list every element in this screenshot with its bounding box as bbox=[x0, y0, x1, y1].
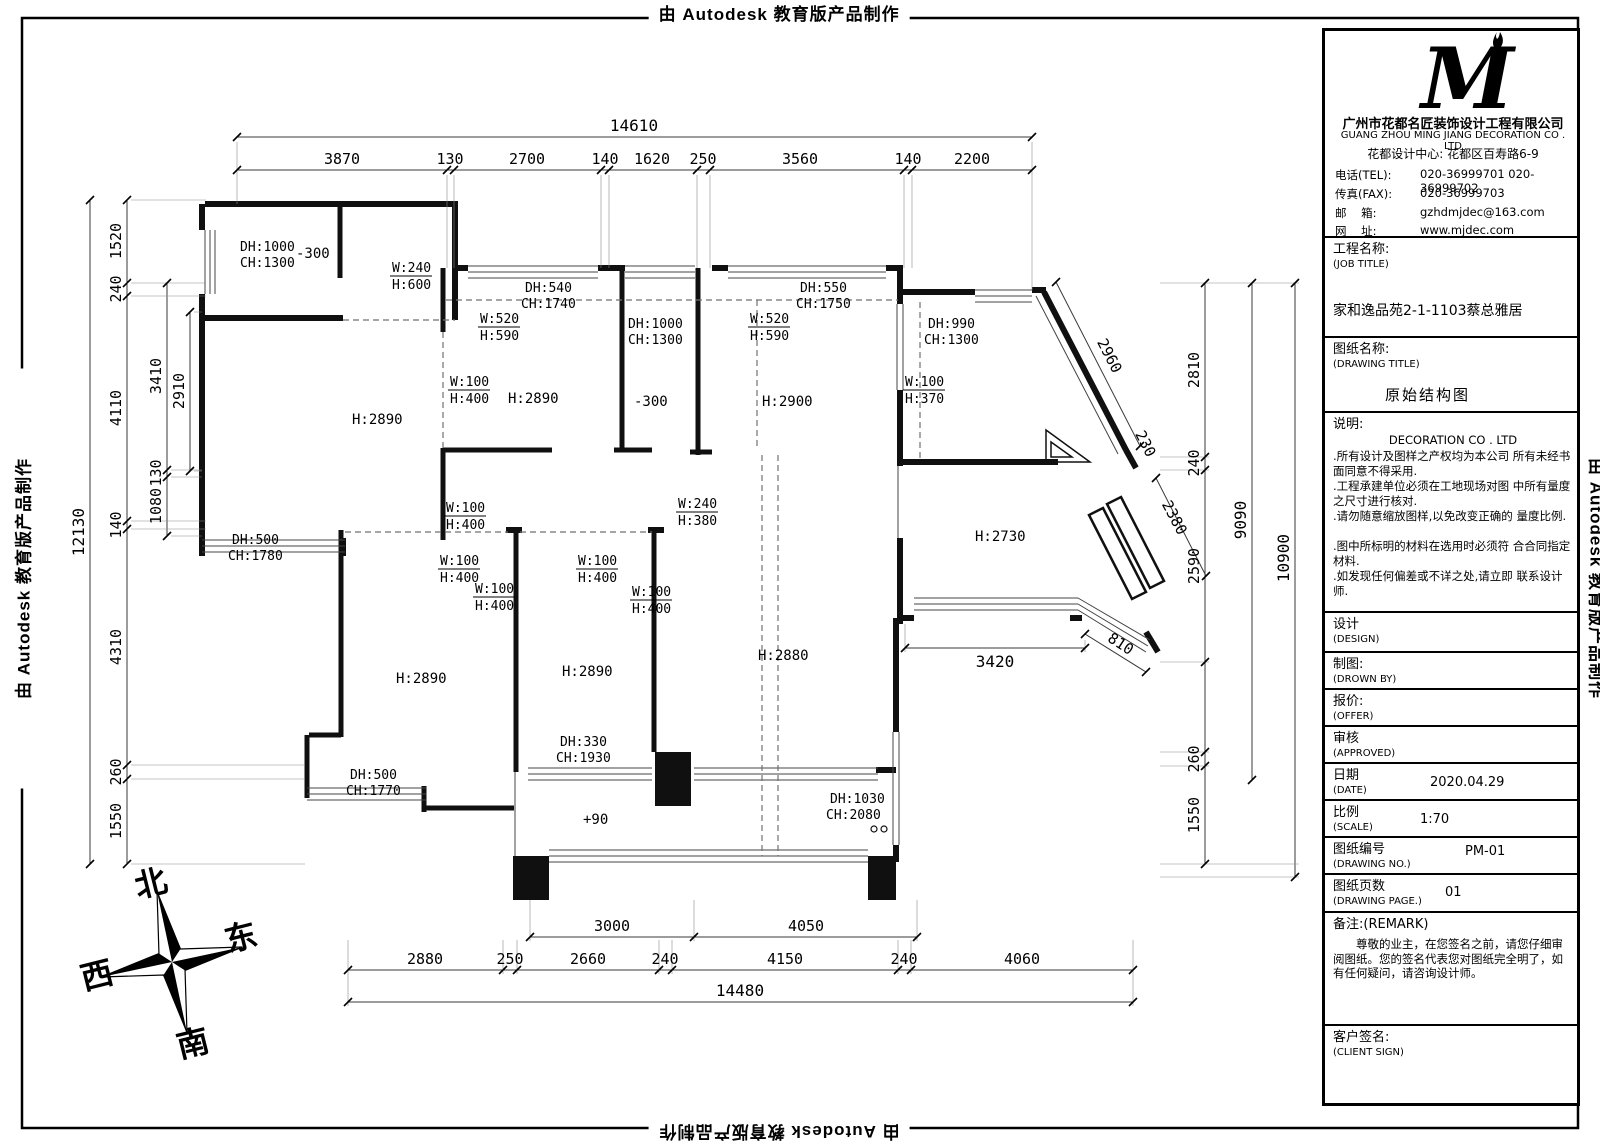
compass-north-label: 北 bbox=[131, 861, 171, 906]
drown-label-cn: 制图: bbox=[1333, 657, 1396, 672]
opening-h: H:590 bbox=[480, 329, 519, 344]
opening-w: W:100 bbox=[632, 585, 671, 600]
autodesk-banner-top: 由 Autodesk 教育版产品制作 bbox=[649, 0, 910, 25]
note-item: .如发现任何偏差或不详之处,请立即 联系设计师. bbox=[1333, 569, 1573, 598]
drawing-label-cn: 图纸名称: bbox=[1333, 342, 1420, 357]
sign-label-cn: 客户签名: bbox=[1333, 1030, 1404, 1045]
fax-value: 020-36999703 bbox=[1420, 186, 1505, 200]
opening-tag: W:100 H:400 bbox=[473, 582, 515, 614]
bay-window-panels bbox=[1089, 497, 1164, 599]
room-height-label: H:2730 bbox=[975, 529, 1026, 545]
opening-h: H:400 bbox=[440, 571, 479, 586]
opening-tag: W:100 H:400 bbox=[448, 375, 490, 407]
remark-section: 备注:(REMARK) 尊敬的业主，在您签名之前，请您仔细审阅图纸。您的签名代表… bbox=[1325, 911, 1577, 1024]
dim-right-total: 10900 bbox=[1274, 534, 1293, 582]
dim-left-seg: 1520 bbox=[107, 223, 125, 259]
opening-h: H:600 bbox=[392, 278, 431, 293]
dim-top-seg: 130 bbox=[436, 150, 463, 168]
dashed-lines bbox=[343, 300, 920, 856]
offer-row: 报价:(OFFER) bbox=[1325, 688, 1577, 725]
compass-south-label: 南 bbox=[173, 1021, 213, 1066]
autodesk-banner-right: 由 Autodesk 教育版产品制作 bbox=[1586, 369, 1600, 789]
dim-bottom-total: 14480 bbox=[716, 981, 764, 1000]
scale-label-cn: 比例 bbox=[1333, 805, 1373, 820]
drawing-title-value: 原始结构图 bbox=[1385, 384, 1470, 405]
company-section: M 广州市花都名匠装饰设计工程有限公司 GUANG ZHOU MING JIAN… bbox=[1325, 31, 1577, 236]
terrace-column-right bbox=[868, 856, 896, 900]
opening-w: W:520 bbox=[480, 312, 519, 327]
approved-row: 审核(APPROVED) bbox=[1325, 725, 1577, 762]
dim-bottom-inner: 3000 bbox=[594, 917, 630, 935]
dim-right-seg: 2590 bbox=[1185, 548, 1203, 584]
opening-h: H:590 bbox=[750, 329, 789, 344]
drawing-no-value: PM-01 bbox=[1465, 844, 1505, 859]
room-height-label: H:2890 bbox=[562, 664, 613, 680]
page-label-en: (DRAWING PAGE.) bbox=[1333, 894, 1422, 909]
dim-diag: 810 bbox=[1104, 629, 1137, 659]
dim-left-seg: 4110 bbox=[107, 390, 125, 426]
wall-partitions bbox=[307, 204, 712, 812]
date-row: 日期(DATE) 2020.04.29 bbox=[1325, 762, 1577, 799]
date-label-cn: 日期 bbox=[1333, 768, 1367, 783]
window-ch: CH:2080 bbox=[826, 808, 881, 823]
note-item: .所有设计及图样之产权均为本公司 所有未经书面同意不得采用. bbox=[1333, 449, 1573, 478]
offer-label-cn: 报价: bbox=[1333, 694, 1373, 709]
opening-tag: W:520 H:590 bbox=[478, 312, 520, 344]
dim-left-seg: 1550 bbox=[107, 803, 125, 839]
dim-left-total: 12130 bbox=[69, 508, 88, 556]
remark-text: 尊敬的业主，在您签名之前，请您仔细审阅图纸。您的签名代表您对图纸完全明了，如有任… bbox=[1333, 937, 1573, 981]
job-label-en: (JOB TITLE) bbox=[1333, 257, 1389, 272]
dim-top-seg: 2700 bbox=[509, 150, 545, 168]
opening-labels: W:240 H:600 W:520 H:590 W:520 H:590 W:10… bbox=[390, 261, 945, 617]
compass-west-label: 西 bbox=[77, 953, 117, 998]
opening-h: H:380 bbox=[678, 514, 717, 529]
dim-bottom-seg: 4150 bbox=[767, 950, 803, 968]
window-dh: DH:1000 bbox=[628, 317, 683, 332]
opening-h: H:400 bbox=[632, 602, 671, 617]
dim-left-seg: 260 bbox=[107, 758, 125, 785]
scale-row: 比例(SCALE) 1:70 bbox=[1325, 799, 1577, 836]
dim-bottom-inner: 4050 bbox=[788, 917, 824, 935]
dim-bottom-seg: 4060 bbox=[1004, 950, 1040, 968]
window-ch: CH:1770 bbox=[346, 784, 401, 799]
opening-w: W:100 bbox=[475, 582, 514, 597]
client-sign-section: 客户签名:(CLIENT SIGN) bbox=[1325, 1024, 1577, 1103]
email-value: gzhdmjdec@163.com bbox=[1420, 205, 1545, 219]
dim-diag: 230 bbox=[1131, 428, 1159, 460]
window-dh: DH:550 bbox=[800, 281, 847, 296]
drown-label-en: (DROWN BY) bbox=[1333, 672, 1396, 687]
design-row: 设计(DESIGN) bbox=[1325, 611, 1577, 651]
room-height-label: H:2890 bbox=[352, 412, 403, 428]
remark-label: 备注:(REMARK) bbox=[1333, 917, 1428, 932]
level-label: +90 bbox=[583, 812, 608, 828]
opening-w: W:100 bbox=[905, 375, 944, 390]
no-label-en: (DRAWING NO.) bbox=[1333, 857, 1411, 872]
notes-section: 说明: DECORATION CO . LTD .所有设计及图样之产权均为本公司… bbox=[1325, 411, 1577, 611]
date-label-en: (DATE) bbox=[1333, 783, 1367, 798]
window-ch: CH:1930 bbox=[556, 751, 611, 766]
dim-diag: 2380 bbox=[1158, 497, 1191, 537]
opening-tag: W:520 H:590 bbox=[748, 312, 790, 344]
no-label-cn: 图纸编号 bbox=[1333, 842, 1411, 857]
opening-w: W:100 bbox=[450, 375, 489, 390]
page-value: 01 bbox=[1445, 885, 1462, 900]
dim-left-seg: 240 bbox=[107, 275, 125, 302]
dim-top-seg: 2200 bbox=[954, 150, 990, 168]
dim-right-mid: 9090 bbox=[1231, 501, 1250, 540]
autodesk-banner-bottom: 由 Autodesk 教育版产品制作 bbox=[649, 1121, 910, 1146]
window-dh: DH:540 bbox=[525, 281, 572, 296]
window-ch: CH:1300 bbox=[628, 333, 683, 348]
notes-co: DECORATION CO . LTD bbox=[1333, 433, 1573, 448]
design-label-en: (DESIGN) bbox=[1333, 632, 1379, 647]
scale-label-en: (SCALE) bbox=[1333, 820, 1373, 835]
dashed-all bbox=[343, 300, 920, 856]
corner-glass-detail bbox=[1046, 430, 1090, 462]
drown-row: 制图:(DROWN BY) bbox=[1325, 651, 1577, 688]
door-knob-dot bbox=[881, 826, 887, 832]
dim-top-seg: 3560 bbox=[782, 150, 818, 168]
dim-left-inner2: 2910 bbox=[170, 373, 188, 409]
opening-tag: W:100 H:370 bbox=[903, 375, 945, 407]
dim-right-seg: 2810 bbox=[1185, 352, 1203, 388]
job-title-value: 家和逸品苑2-1-1103蔡总雅居 bbox=[1333, 300, 1523, 320]
approved-label-en: (APPROVED) bbox=[1333, 746, 1395, 761]
email-label: 邮 箱: bbox=[1335, 205, 1377, 221]
window-ch: CH:1750 bbox=[796, 297, 851, 312]
drawing-sheet: 由 Autodesk 教育版产品制作 由 Autodesk 教育版产品制作 由 … bbox=[0, 0, 1600, 1146]
dim-left-inner: 130 bbox=[147, 459, 165, 486]
sign-label-en: (CLIENT SIGN) bbox=[1333, 1045, 1404, 1060]
note-item: .请勿随意缩放图样,以免改变正确的 量度比例. bbox=[1333, 509, 1573, 524]
window-ch: CH:1780 bbox=[228, 549, 283, 564]
level-label: -300 bbox=[634, 394, 668, 410]
page-row: 图纸页数(DRAWING PAGE.) 01 bbox=[1325, 873, 1577, 911]
compass-rose: 北 东 南 西 bbox=[77, 861, 261, 1066]
window-dh: DH:500 bbox=[232, 533, 279, 548]
scale-value: 1:70 bbox=[1420, 812, 1449, 827]
offer-label-en: (OFFER) bbox=[1333, 709, 1373, 724]
terrace-column-left bbox=[513, 856, 549, 900]
dim-top-total: 14610 bbox=[610, 116, 658, 135]
compass-star bbox=[87, 877, 258, 1048]
tel-label: 电话(TEL): bbox=[1335, 167, 1392, 183]
opening-h: H:400 bbox=[475, 599, 514, 614]
partition-walls bbox=[307, 204, 712, 812]
fax-label: 传真(FAX): bbox=[1335, 186, 1392, 202]
note-item: .工程承建单位必须在工地现场对图 中所有量度之尺寸进行核对. bbox=[1333, 479, 1573, 508]
notes-label: 说明: bbox=[1333, 417, 1363, 432]
door-dots bbox=[871, 826, 887, 832]
approved-label-cn: 审核 bbox=[1333, 731, 1395, 746]
dim-top-seg: 250 bbox=[689, 150, 716, 168]
opening-h: H:370 bbox=[905, 392, 944, 407]
opening-h: H:400 bbox=[578, 571, 617, 586]
opening-tag: W:240 H:380 bbox=[676, 497, 718, 529]
dim-top-seg: 1620 bbox=[634, 150, 670, 168]
window-ch: CH:1300 bbox=[924, 333, 979, 348]
window-dh: DH:1000 bbox=[240, 240, 295, 255]
dim-bottom-seg: 240 bbox=[651, 950, 678, 968]
opening-tag: W:100 H:400 bbox=[576, 554, 618, 586]
dim-bottom-seg: 240 bbox=[890, 950, 917, 968]
opening-w: W:240 bbox=[392, 261, 431, 276]
dim-left-inner: 3410 bbox=[147, 358, 165, 394]
job-label-cn: 工程名称: bbox=[1333, 242, 1389, 257]
opening-tag: W:240 H:600 bbox=[390, 261, 432, 293]
web-value: www.mjdec.com bbox=[1420, 223, 1514, 237]
opening-w: W:100 bbox=[578, 554, 617, 569]
window-dh: DH:500 bbox=[350, 768, 397, 783]
opening-w: W:100 bbox=[446, 501, 485, 516]
drawing-no-row: 图纸编号(DRAWING NO.) PM-01 bbox=[1325, 836, 1577, 873]
dim-left-inner: 1080 bbox=[147, 488, 165, 524]
job-title-section: 工程名称: (JOB TITLE) 家和逸品苑2-1-1103蔡总雅居 bbox=[1325, 236, 1577, 336]
dim-interior: 3420 bbox=[976, 652, 1015, 671]
window-dh: DH:330 bbox=[560, 735, 607, 750]
opening-tag: W:100 H:400 bbox=[444, 501, 486, 533]
dim-top-seg: 140 bbox=[894, 150, 921, 168]
room-height-label: H:2900 bbox=[762, 394, 813, 410]
opening-tag: W:100 H:400 bbox=[438, 554, 480, 586]
opening-h: H:400 bbox=[450, 392, 489, 407]
room-height-label: H:2890 bbox=[396, 671, 447, 687]
opening-tag: W:100 H:400 bbox=[630, 585, 672, 617]
opening-w: W:100 bbox=[440, 554, 479, 569]
opening-w: W:520 bbox=[750, 312, 789, 327]
autodesk-banner-left: 由 Autodesk 教育版产品制作 bbox=[10, 369, 35, 789]
room-height-label: H:2880 bbox=[758, 648, 809, 664]
page-label-cn: 图纸页数 bbox=[1333, 879, 1422, 894]
dim-bottom-seg: 2660 bbox=[570, 950, 606, 968]
window-ch: CH:1740 bbox=[521, 297, 576, 312]
room-height-label: H:2890 bbox=[508, 391, 559, 407]
dim-bottom-seg: 250 bbox=[496, 950, 523, 968]
drawing-title-section: 图纸名称: (DRAWING TITLE) 原始结构图 bbox=[1325, 336, 1577, 411]
opening-w: W:240 bbox=[678, 497, 717, 512]
design-label-cn: 设计 bbox=[1333, 617, 1379, 632]
title-block: M 广州市花都名匠装饰设计工程有限公司 GUANG ZHOU MING JIAN… bbox=[1322, 28, 1580, 1106]
dim-diag: 2960 bbox=[1093, 336, 1125, 376]
dim-right-seg: 1550 bbox=[1185, 797, 1203, 833]
door-knob-dot bbox=[871, 826, 877, 832]
dim-top-seg: 3870 bbox=[324, 150, 360, 168]
dim-left-seg: 140 bbox=[107, 511, 125, 538]
dim-bottom-seg: 2880 bbox=[407, 950, 443, 968]
dim-top-seg: 140 bbox=[591, 150, 618, 168]
window-dh: DH:1030 bbox=[830, 792, 885, 807]
date-value: 2020.04.29 bbox=[1430, 775, 1504, 790]
opening-h: H:400 bbox=[446, 518, 485, 533]
note-item: .图中所标明的材料在选用时必须符 合合同指定材料. bbox=[1333, 539, 1573, 568]
level-label: -300 bbox=[296, 246, 330, 262]
dim-left-seg: 4310 bbox=[107, 629, 125, 665]
pier-center bbox=[655, 752, 691, 806]
window-dh: DH:990 bbox=[928, 317, 975, 332]
dim-right-seg: 240 bbox=[1185, 449, 1203, 476]
window-ch: CH:1300 bbox=[240, 256, 295, 271]
company-center: 花都设计中心: 花都区百寿路6-9 bbox=[1333, 145, 1573, 162]
dim-right-seg: 260 bbox=[1185, 745, 1203, 772]
drawing-label-en: (DRAWING TITLE) bbox=[1333, 357, 1420, 372]
